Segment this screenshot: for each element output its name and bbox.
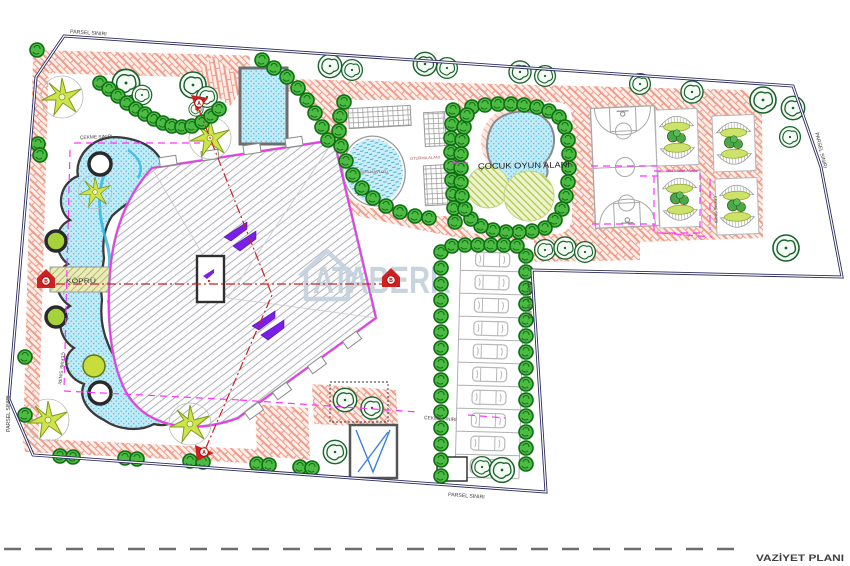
building-core [197, 256, 224, 302]
label-oturma-2: OTURMA ALANI [668, 169, 698, 173]
label-kopru: KÖPRÜ [66, 277, 96, 285]
ramp-structure [350, 425, 397, 478]
site-plan-drawing: ATABERK [0, 0, 850, 566]
label-cekme-bottom: ÇEKME SINIRI [424, 415, 457, 423]
svg-text:B: B [389, 278, 393, 284]
drawing-title: VAZİYET PLANI [756, 553, 844, 563]
label-cekme-pergola: ÇEKME SINIRI [713, 196, 719, 223]
basketball-court [590, 106, 659, 229]
label-parsel-left: PARSEL SINIRI [6, 395, 12, 432]
label-cekme-topleft: ÇEKME SINIRI [80, 134, 113, 141]
svg-text:A: A [202, 450, 206, 456]
svg-text:B: B [44, 279, 48, 285]
parking-lot [455, 247, 525, 479]
label-cocuk-oyun: ÇOCUK OYUN ALANI [478, 160, 570, 171]
site-plan-canvas: ATABERK [0, 0, 850, 566]
svg-text:A: A [197, 101, 201, 107]
label-sus-havuzu: SÜS HAVUZU [360, 169, 388, 174]
label-parsel-bottom: PARSEL SINIRI [448, 492, 485, 501]
label-parsel-parking: PARSEL SINIRI [525, 282, 532, 319]
